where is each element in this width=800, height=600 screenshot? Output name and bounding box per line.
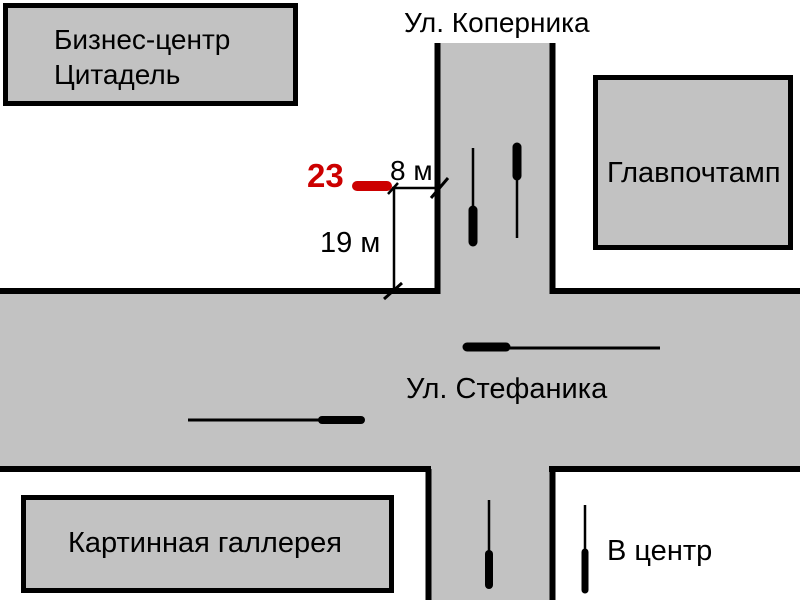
svg-text:Главпочтамп: Главпочтамп (607, 157, 781, 189)
svg-text:19 м: 19 м (320, 227, 380, 259)
svg-text:Ул. Коперника: Ул. Коперника (404, 7, 590, 38)
svg-text:Картинная галлерея: Картинная галлерея (68, 527, 342, 559)
svg-text:В центр: В центр (607, 535, 712, 567)
svg-text:23: 23 (307, 157, 344, 194)
svg-text:Ул. Стефаника: Ул. Стефаника (406, 373, 608, 405)
svg-text:Бизнес-центр: Бизнес-центр (54, 24, 230, 55)
svg-text:Цитадель: Цитадель (54, 59, 180, 90)
svg-text:8 м: 8 м (390, 155, 433, 186)
